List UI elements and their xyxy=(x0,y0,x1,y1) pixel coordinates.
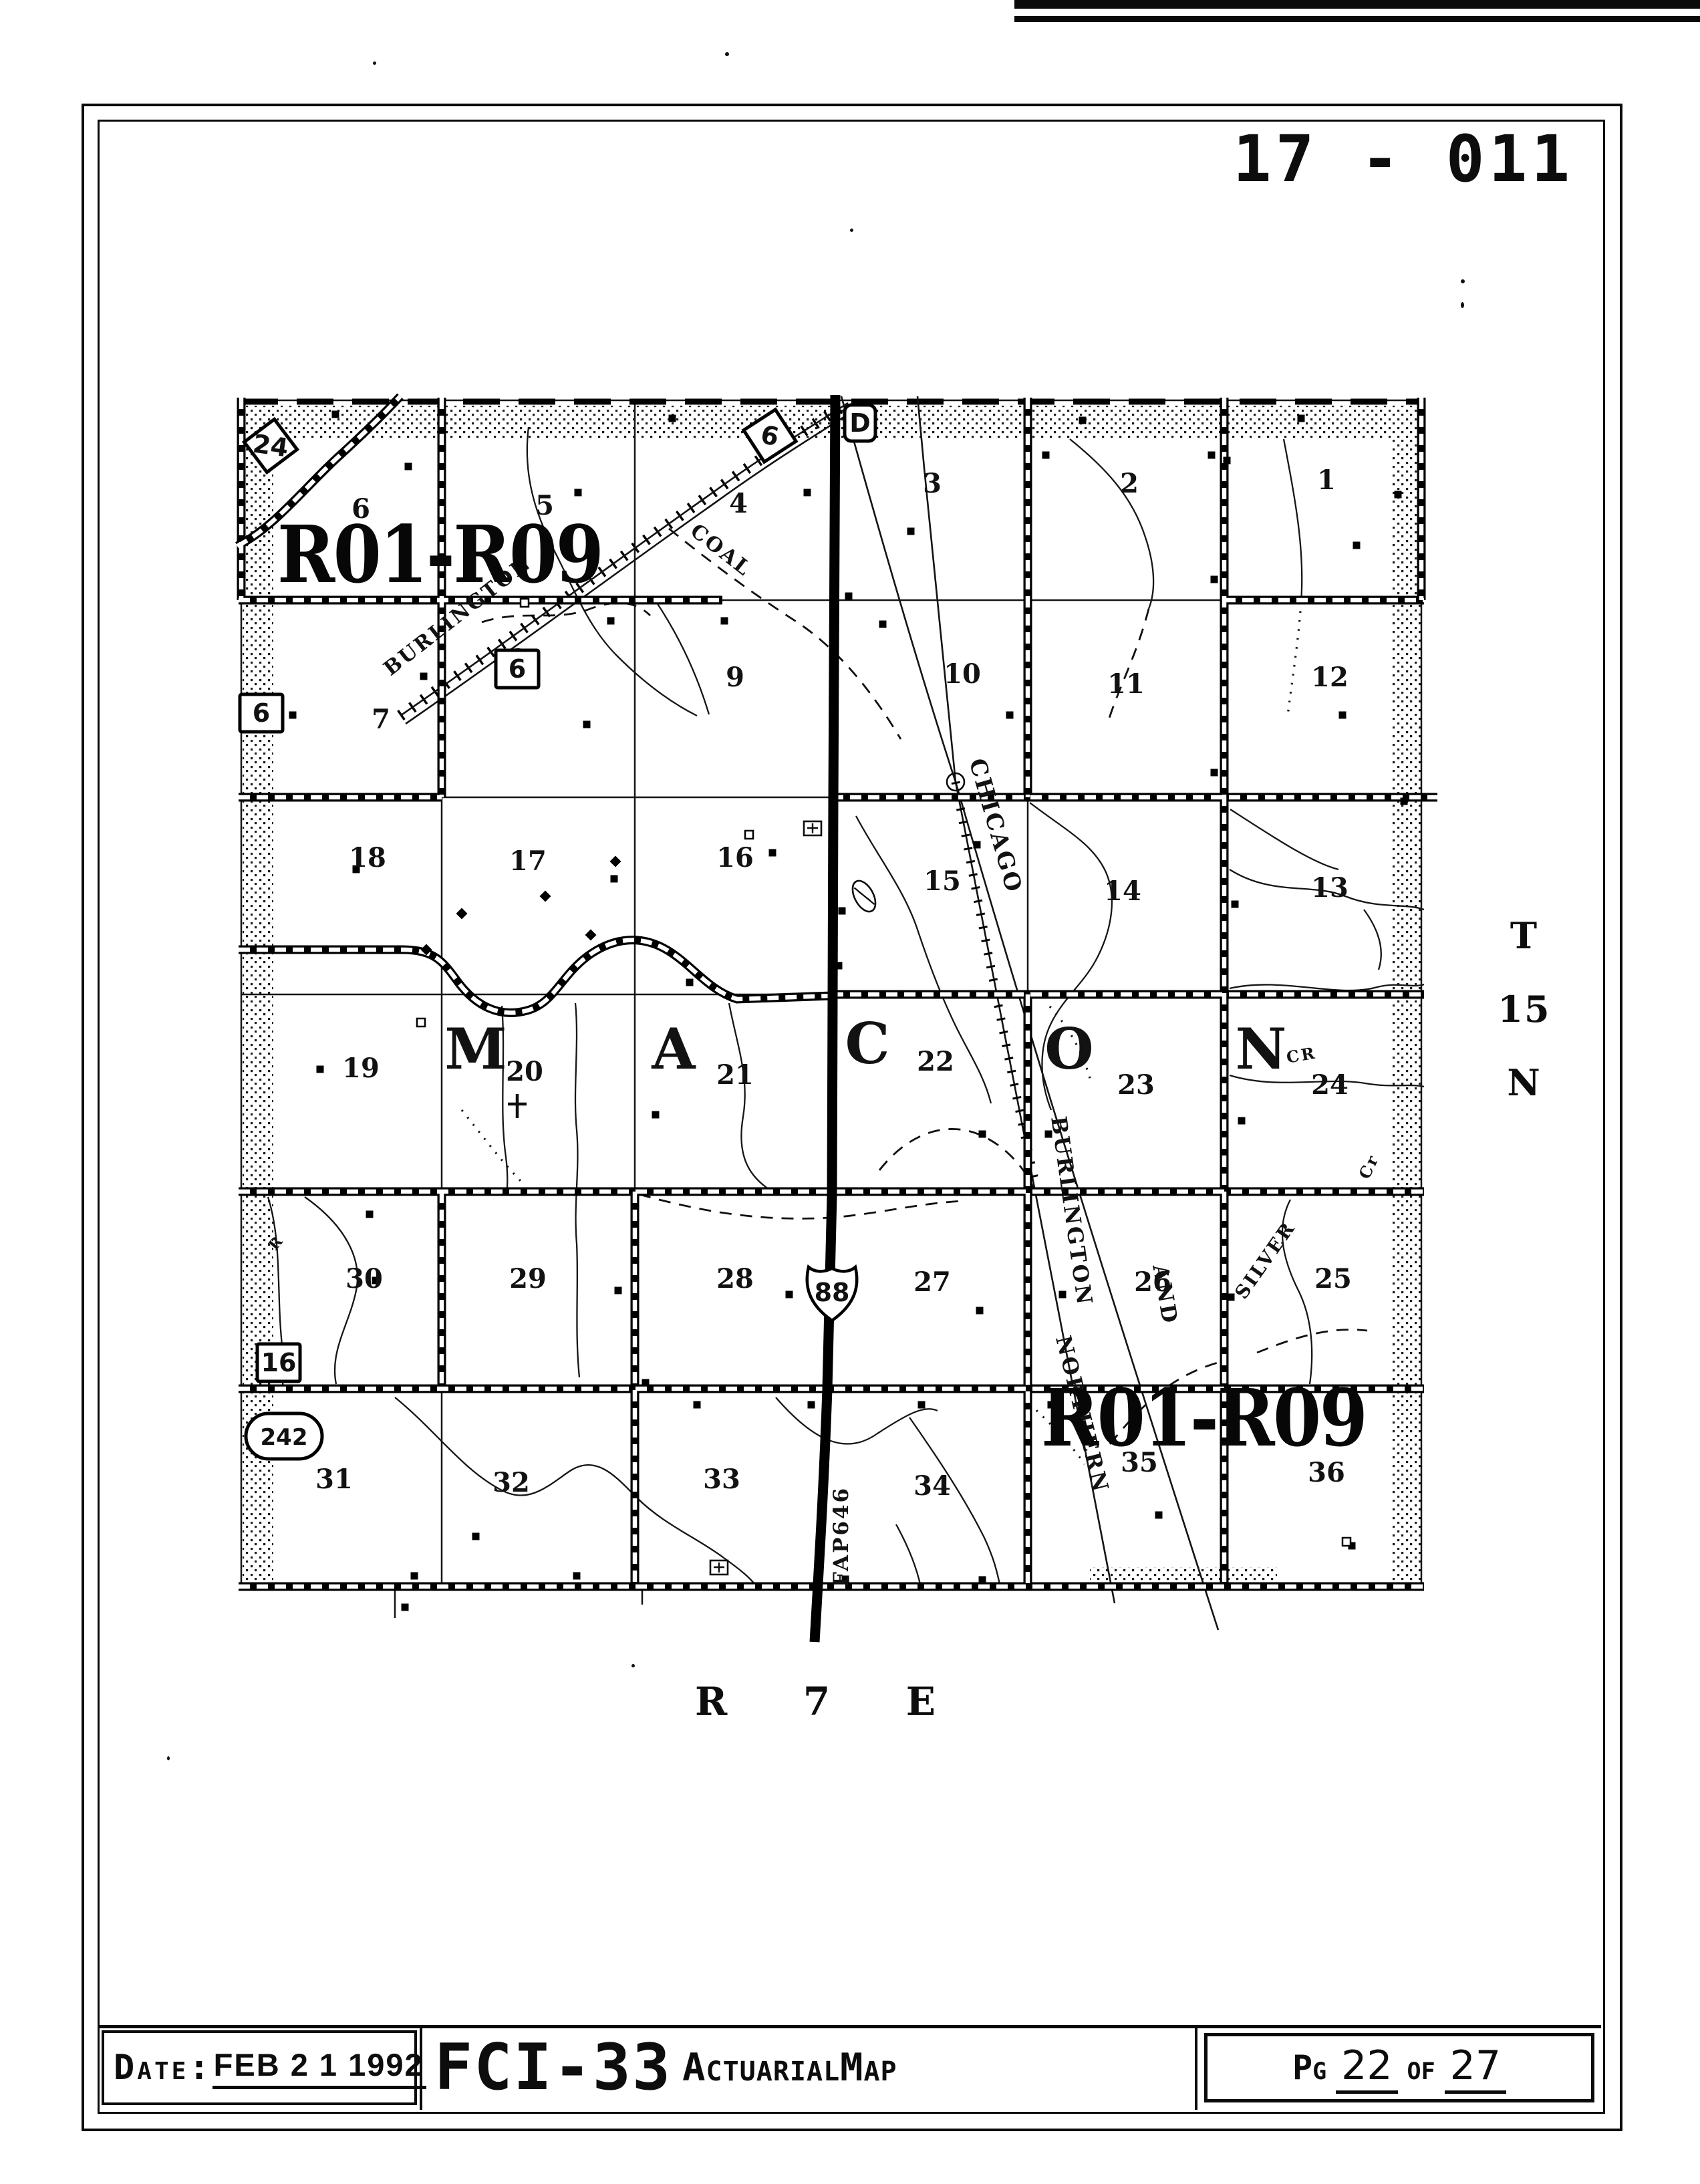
page-total: 27 xyxy=(1445,2042,1506,2094)
house-marker xyxy=(845,593,853,600)
section-number: 20 xyxy=(506,1056,543,1087)
feature-label: BURLINGTON xyxy=(1046,1115,1098,1308)
house-marker xyxy=(573,1573,581,1580)
house-marker xyxy=(839,908,846,915)
house-marker xyxy=(652,1111,660,1119)
building-marker xyxy=(585,930,597,941)
feature-label: CR xyxy=(1285,1043,1318,1067)
house-marker xyxy=(583,721,591,728)
house-marker xyxy=(879,621,887,628)
section-number: 25 xyxy=(1314,1263,1352,1294)
house-marker xyxy=(1401,798,1408,805)
house-marker xyxy=(976,1307,984,1315)
section-number: 4 xyxy=(729,488,748,519)
scanned-actuarial-map-page: { "page": { "doc_number": "17 - 011", "o… xyxy=(0,0,1700,2184)
scan-speck xyxy=(1461,279,1465,283)
house-marker xyxy=(366,1211,374,1218)
section-number: 31 xyxy=(315,1464,353,1495)
map-title: FCI-33 ActuarialMap xyxy=(434,2028,1189,2108)
feature-label: Cr xyxy=(1355,1151,1383,1182)
county-name-letter: O xyxy=(1044,1016,1093,1082)
shield-number: D xyxy=(849,408,871,438)
shield-number: 16 xyxy=(261,1348,297,1377)
house-marker xyxy=(1224,457,1231,464)
section-number: 21 xyxy=(716,1059,754,1091)
building-marker xyxy=(540,891,551,902)
church-icon xyxy=(804,821,821,835)
section-number: 34 xyxy=(913,1470,951,1502)
risk-area-label-bottom: R01-R09 xyxy=(1041,1371,1366,1464)
pg-label: Pg xyxy=(1292,2048,1326,2087)
barn-marker xyxy=(745,831,753,839)
range-label: R 7 E xyxy=(695,1679,936,1724)
section-number: 12 xyxy=(1311,662,1349,693)
house-marker xyxy=(1079,417,1087,424)
house-marker xyxy=(1395,491,1402,499)
range-e: E xyxy=(906,1679,936,1724)
date-box: Date: FEB 2 1 1992 xyxy=(102,2030,417,2105)
house-marker xyxy=(1006,712,1014,719)
feature-label: SILVER xyxy=(1230,1217,1300,1303)
house-marker xyxy=(1353,542,1361,549)
house-marker xyxy=(332,411,339,418)
house-marker xyxy=(1238,1117,1246,1125)
house-marker xyxy=(1339,712,1347,719)
section-number: 33 xyxy=(703,1464,740,1495)
house-marker xyxy=(575,489,582,497)
section-number: 19 xyxy=(342,1053,380,1084)
page-number: 22 xyxy=(1336,2042,1397,2094)
county-name-letters: MACON xyxy=(445,1010,1287,1082)
shield-number: 242 xyxy=(261,1424,308,1451)
highway-fap646 xyxy=(815,395,835,1642)
house-marker xyxy=(405,463,412,470)
scan-speck xyxy=(1461,302,1464,308)
house-marker xyxy=(974,841,981,849)
section-number: 29 xyxy=(509,1263,547,1294)
scan-artifact-bar xyxy=(1014,16,1700,22)
section-number: 9 xyxy=(726,662,744,693)
section-number: 30 xyxy=(345,1263,383,1294)
house-marker xyxy=(1208,452,1216,459)
house-marker xyxy=(686,979,694,986)
house-marker xyxy=(786,1291,793,1299)
scan-speck xyxy=(725,52,729,56)
house-marker xyxy=(472,1533,480,1540)
house-marker xyxy=(317,1066,324,1073)
township-label: T 15 N xyxy=(1487,914,1561,1104)
section-number: 28 xyxy=(716,1263,754,1294)
cemetery-cross-icon xyxy=(508,1094,527,1118)
shield-number: 6 xyxy=(253,698,270,728)
section-number: 10 xyxy=(944,658,981,690)
barn-marker xyxy=(417,1018,425,1027)
house-marker xyxy=(289,712,297,719)
section-number: 13 xyxy=(1311,872,1349,904)
house-marker xyxy=(607,618,615,625)
building-marker xyxy=(456,908,468,920)
risk-area-label-top: R01-R09 xyxy=(277,508,602,601)
scan-speck xyxy=(631,1664,635,1667)
house-marker xyxy=(1228,1294,1235,1301)
house-marker xyxy=(1211,769,1218,777)
square-route-shield: 6 xyxy=(240,694,283,732)
section-number: 18 xyxy=(349,842,386,873)
house-marker xyxy=(979,1577,986,1584)
section-number: 3 xyxy=(923,468,942,499)
house-marker xyxy=(694,1401,701,1409)
church-icon xyxy=(710,1560,728,1575)
section-number: 32 xyxy=(492,1467,530,1498)
section-number: 15 xyxy=(924,865,961,897)
house-marker xyxy=(1155,1512,1163,1519)
house-marker xyxy=(611,875,618,883)
map-type: ActuarialMap xyxy=(682,2046,897,2090)
shield-number: 88 xyxy=(815,1278,850,1307)
feature-label: AND xyxy=(1147,1262,1183,1327)
section-number: 16 xyxy=(716,842,754,873)
house-marker xyxy=(769,849,776,857)
range-num: 7 xyxy=(803,1679,830,1724)
section-number: 27 xyxy=(913,1266,951,1298)
section-number: 14 xyxy=(1104,875,1141,907)
oval-route-shield: 242 xyxy=(246,1413,322,1459)
house-marker xyxy=(1211,576,1218,583)
township-t: T xyxy=(1510,914,1538,957)
house-marker xyxy=(1232,901,1239,908)
square-route-shield: 16 xyxy=(257,1344,300,1381)
section-number: 1 xyxy=(1317,464,1336,496)
house-marker xyxy=(1042,452,1050,459)
house-marker xyxy=(402,1604,409,1611)
section-number: 22 xyxy=(917,1046,954,1077)
house-marker xyxy=(721,618,728,625)
range-r: R xyxy=(695,1679,727,1724)
building-marker xyxy=(610,856,621,867)
house-marker xyxy=(804,489,811,497)
house-marker xyxy=(918,1401,926,1409)
section-number: 24 xyxy=(1311,1069,1349,1101)
pond-icon xyxy=(848,877,880,915)
county-name-letter: N xyxy=(1236,1016,1287,1082)
document-number: 17 - 011 xyxy=(1203,122,1604,196)
house-marker xyxy=(669,415,676,422)
house-marker xyxy=(615,1287,622,1294)
township-num: 15 xyxy=(1498,988,1550,1031)
section-number: 23 xyxy=(1117,1069,1155,1101)
barn-marker xyxy=(1342,1538,1351,1546)
date-label: Date: xyxy=(114,2048,212,2088)
county-name-letter: A xyxy=(651,1016,696,1082)
house-marker xyxy=(835,962,843,970)
feature-label: COAL xyxy=(686,519,756,581)
house-marker xyxy=(979,1131,986,1138)
of-label: of xyxy=(1407,2048,1435,2087)
scan-artifact-bar xyxy=(1014,0,1700,9)
house-marker xyxy=(1298,415,1305,422)
page-number-box: Pg 22 of 27 xyxy=(1204,2033,1594,2102)
map-icons xyxy=(508,773,964,1575)
shield-number: 6 xyxy=(509,654,526,684)
scan-speck xyxy=(850,229,853,232)
house-marker xyxy=(907,528,915,535)
house-marker xyxy=(1059,1291,1067,1299)
section-number: 17 xyxy=(509,845,547,877)
interstate-route-shield: 88 xyxy=(807,1267,857,1321)
scan-speck xyxy=(167,1756,170,1760)
shield-number: 24 xyxy=(251,429,290,463)
house-marker xyxy=(808,1401,815,1409)
titleblock-divider xyxy=(1195,2025,1197,2110)
square-route-shield: 6 xyxy=(496,650,539,688)
scan-speck xyxy=(373,61,376,65)
house-marker xyxy=(642,1379,650,1387)
section-number: 2 xyxy=(1120,468,1139,499)
map-code: FCI-33 xyxy=(434,2031,672,2104)
date-stamp: FEB 2 1 1992 xyxy=(212,2046,426,2089)
county-name-letter: C xyxy=(845,1010,890,1077)
feature-label: FAP646 xyxy=(829,1486,853,1587)
section-number: 7 xyxy=(372,704,390,735)
box-route-shield: D xyxy=(845,405,875,441)
section-number: 11 xyxy=(1107,668,1145,700)
township-n: N xyxy=(1507,1061,1541,1104)
county-name-letter: M xyxy=(445,1016,507,1082)
house-marker xyxy=(420,673,428,680)
house-marker xyxy=(411,1573,418,1580)
